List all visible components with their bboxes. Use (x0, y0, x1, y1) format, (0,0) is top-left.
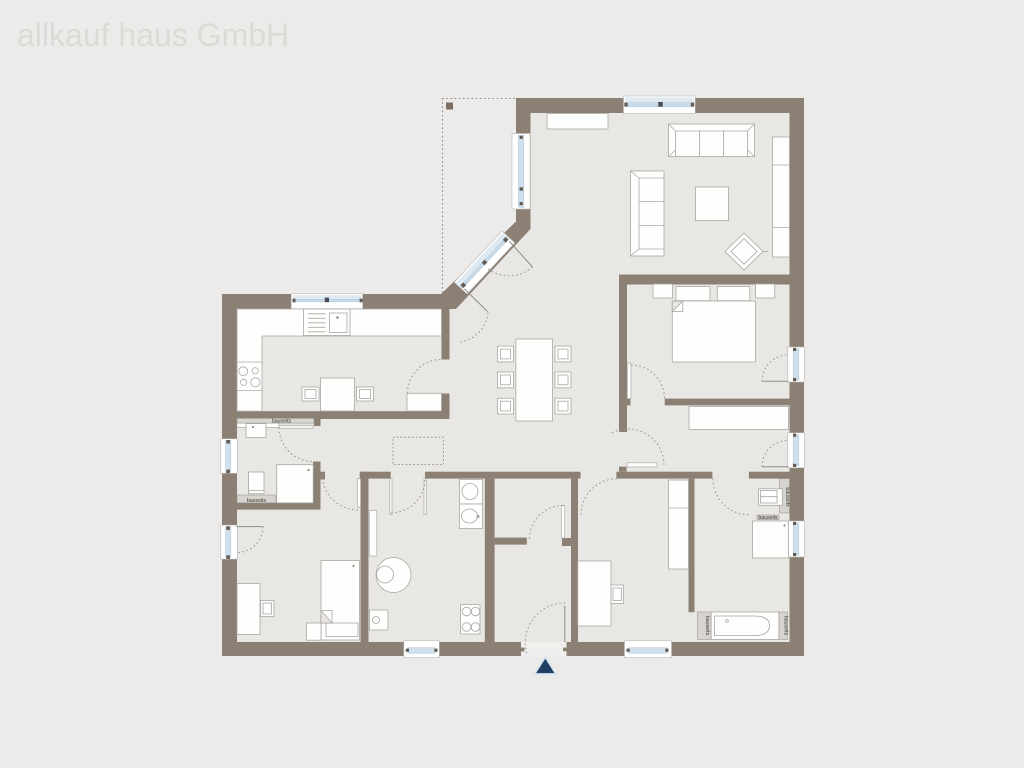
svg-text:bauseits: bauseits (272, 419, 292, 425)
svg-text:bauseits: bauseits (783, 616, 789, 636)
svg-text:allkauf haus GmbH: allkauf haus GmbH (17, 17, 289, 53)
svg-text:bauseits: bauseits (247, 498, 267, 504)
svg-text:bauseits: bauseits (704, 616, 710, 636)
svg-text:bauseits: bauseits (758, 515, 778, 521)
svg-text:bauseits: bauseits (784, 487, 790, 507)
